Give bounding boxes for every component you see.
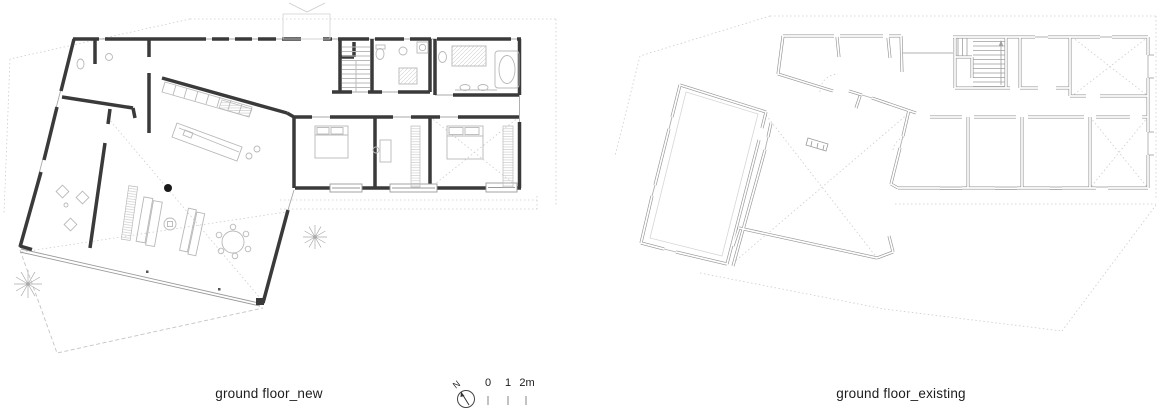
floorplan-sheet: ground floor_new ground floor_existing N… [0,0,1160,409]
glazing-south [20,249,264,306]
legend: N 0 1 2m [444,374,574,408]
terrace-outline [20,250,263,353]
reference-lines-existing [615,16,1156,331]
walls-existing-core [641,36,1148,266]
floor-plan-existing-drawing [615,0,1160,345]
floor-plan-new-drawing [0,0,580,372]
walls-existing [641,36,1148,266]
scale-tick [525,396,527,405]
stove-dot [164,184,172,192]
wardrobes [121,100,513,240]
scale-label-1: 1 [502,377,514,389]
caption-existing-plan: ground floor_existing [836,386,966,401]
scale-label-0: 0 [482,377,494,389]
walls-new [20,39,521,303]
stair-existing [958,38,1005,87]
north-label: N [451,379,462,391]
heater-symbol [806,138,828,151]
scale-label-2: 2m [514,377,540,389]
scale-tick [507,396,509,405]
window-frames-new [330,183,517,192]
caption-new-plan: ground floor_new [215,386,323,401]
scale-tick [487,396,489,405]
scale-bar: 0 1 2m [478,375,574,408]
